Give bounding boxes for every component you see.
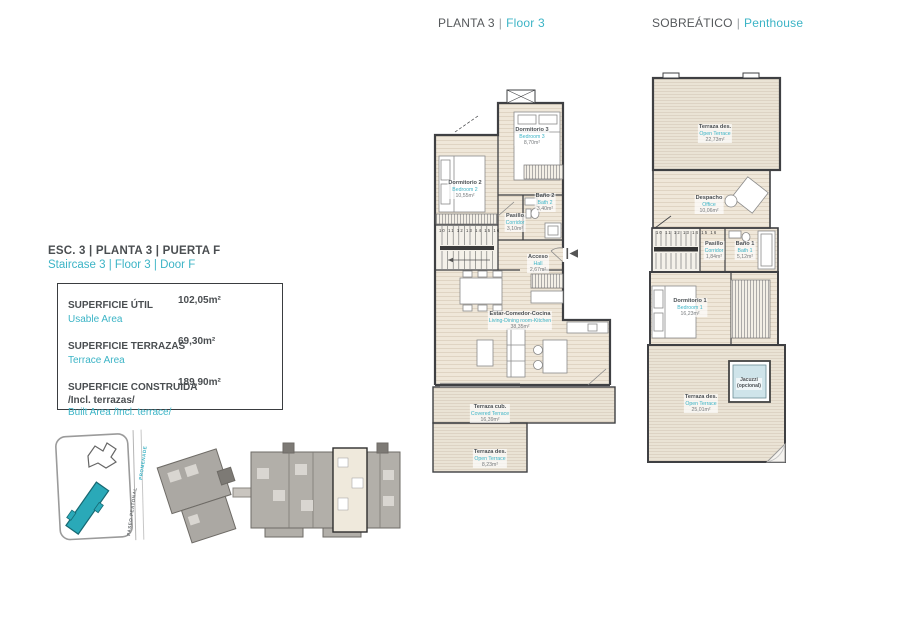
key-plan-main-block [251,443,400,537]
penthouse-header-es: SOBREÁTICO [652,16,733,30]
usable-area-translation: Usable Area [68,314,282,325]
label-penthouse-corridor: Pasillo Corridor 1,84m² [704,241,725,260]
key-plan-highlighted-unit [333,448,367,532]
label-penthouse-bedroom1: Dormitorio 1 Bedroom 1 16,23m² [672,298,707,317]
kitchen-counter-icon [567,322,608,333]
penthouse-header-en: Penthouse [744,16,803,30]
label-penthouse-office: Despacho Office 10,06m² [695,195,724,214]
floor3-header-en: Floor 3 [506,16,545,30]
label-floor3-corridor: Pasillo Corridor 3,10m² [505,213,526,232]
unit-title-en: Staircase 3 | Floor 3 | Door F [48,259,220,271]
penthouse-stair-numbers: 10 11 12 13 14 15 16 [656,230,717,235]
label-floor3-open-terrace: Terraza des. Open Terrace 8,23m² [473,449,507,468]
label-penthouse-bath1: Baño 1 Bath 1 5,12m² [735,241,756,260]
street-label-en: PROMENADE [138,445,148,480]
usable-area-label: SUPERFICIE ÚTIL [68,300,153,311]
terrace-area-translation: Terrace Area [68,355,282,366]
wardrobe3-icon [524,165,563,179]
label-floor3-bath2: Baño 2 Bath 2 3,40m² [535,193,556,212]
floor3-stair-numbers: 10 11 12 13 14 15 16 [439,228,500,233]
label-floor3-living: Estar-Comedor-Cocina Living-Dining room-… [488,311,552,330]
floor3-header-es: PLANTA 3 [438,16,495,30]
label-floor3-hall: Acceso Hall 2,67m² [527,254,549,273]
penthouse-header: SOBREÁTICO|Penthouse [652,16,803,30]
label-penthouse-top-terrace: Terraza des. Open Terrace 22,73m² [698,124,732,143]
label-penthouse-bottom-terrace: Terraza des. Open Terrace 25,01m² [684,394,718,413]
floor3-plan [430,88,630,483]
cabinet-icon [531,291,563,303]
entry-arrow-icon [567,248,579,259]
label-floor3-bedroom2: Dormitorio 2 Bedroom 2 10,55m² [447,180,482,199]
divider: | [737,16,740,30]
unit-title-es: ESC. 3 | PLANTA 3 | PUERTA F [48,245,220,257]
floorplan-sheet: PLANTA 3|Floor 3 SOBREÁTICO|Penthouse ES… [0,0,909,643]
label-penthouse-jacuzzi: Jacuzzi (opcional) [736,378,762,390]
usable-area-row: SUPERFICIE ÚTIL 102,05m² Usable Area [68,295,282,325]
building-key-plan [155,428,400,543]
built-area-row: SUPERFICIE CONSTRUIDA 189,90m² /Incl. te… [68,377,282,418]
label-floor3-bedroom3: Dormitorio 3 Bedroom 3 8,70m² [514,127,549,146]
unit-title: ESC. 3 | PLANTA 3 | PUERTA F Staircase 3… [48,245,220,271]
terrace-area-label: SUPERFICIE TERRAZAS [68,341,185,352]
built-area-sublabel: /Incl. terrazas/ [68,395,282,406]
living-wardrobe-icon [531,274,563,288]
wardrobe2-icon [436,214,497,224]
island-icon [477,340,493,366]
site-plan: PASEO PEATONAL PROMENADE [48,430,148,545]
wardrobe1-icon [731,280,770,338]
dining-table-icon [460,271,502,311]
terrace-area-value: 69,30m² [178,336,215,347]
key-plan-bridge [233,488,251,497]
floor3-header: PLANTA 3|Floor 3 [438,16,545,30]
sofa-icon [507,329,525,377]
usable-area-value: 102,05m² [178,295,221,306]
built-area-value: 189,90m² [178,377,221,388]
covered-terrace-floor [433,387,615,423]
terrace-area-row: SUPERFICIE TERRAZAS 69,30m² Terrace Area [68,336,282,366]
surface-areas-box: SUPERFICIE ÚTIL 102,05m² Usable Area SUP… [57,283,283,410]
divider: | [499,16,502,30]
built-area-translation: Built Area /Incl. terrace/ [68,407,282,418]
label-floor3-covered-terrace: Terraza cub. Covered Terrace 16,39m² [470,404,510,423]
